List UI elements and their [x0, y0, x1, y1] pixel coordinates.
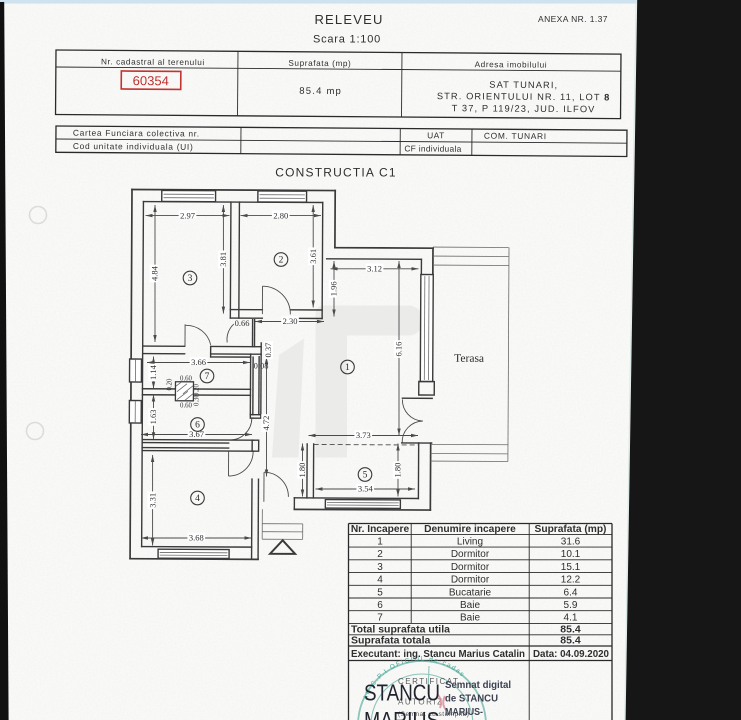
- svg-text:T 37, P 119/23, JUD. ILFO: T 37, P 119/23, JUD. ILFOV: [452, 103, 596, 114]
- svg-text:UAT: UAT: [427, 130, 445, 140]
- svg-text:3.66: 3.66: [191, 357, 206, 367]
- svg-text:Dormitor: Dormitor: [451, 575, 490, 586]
- svg-text:Adresa imobilului: Adresa imobilului: [475, 60, 548, 70]
- svg-text:1.63: 1.63: [148, 409, 158, 424]
- svg-text:Baie: Baie: [460, 613, 480, 624]
- svg-text:0.20: 0.20: [167, 378, 174, 390]
- svg-text:6: 6: [377, 600, 383, 611]
- svg-text:Suprafata (mp): Suprafata (mp): [288, 59, 351, 68]
- svg-text:COM. TUNARI: COM. TUNARI: [484, 131, 547, 141]
- svg-text:5.9: 5.9: [564, 600, 578, 611]
- svg-text:MARIUS-: MARIUS-: [364, 707, 446, 720]
- svg-text:1.80: 1.80: [393, 463, 403, 478]
- svg-text:3.68: 3.68: [189, 533, 204, 543]
- svg-text:Dormitor: Dormitor: [451, 549, 490, 560]
- svg-text:Nr. Incapere: Nr. Incapere: [351, 524, 410, 535]
- svg-text:1.96: 1.96: [329, 281, 339, 296]
- svg-text:3.31: 3.31: [147, 493, 157, 508]
- svg-text:6.16: 6.16: [394, 342, 404, 357]
- svg-text:Nr. cadastral al terenului: Nr. cadastral al terenului: [101, 57, 205, 67]
- svg-text:1.14: 1.14: [148, 364, 158, 380]
- svg-text:4: 4: [377, 575, 383, 586]
- svg-text:4: 4: [195, 494, 200, 504]
- svg-text:2.30: 2.30: [283, 316, 298, 326]
- svg-text:STR. ORIENTULUI NR. 11, LOT: STR. ORIENTULUI NR. 11, LOT 8: [437, 91, 611, 102]
- svg-text:0.37: 0.37: [263, 343, 273, 358]
- svg-text:de STANCU: de STANCU: [445, 693, 498, 705]
- svg-text:3: 3: [188, 274, 193, 284]
- svg-text:4.72: 4.72: [261, 416, 271, 431]
- svg-text:85.4: 85.4: [560, 623, 581, 635]
- svg-text:85.4 mp: 85.4 mp: [299, 86, 342, 97]
- svg-text:15.1: 15.1: [561, 562, 581, 573]
- svg-text:0.30: 0.30: [194, 393, 201, 405]
- svg-text:Scara 1:100: Scara 1:100: [313, 34, 381, 46]
- svg-text:6.4: 6.4: [564, 587, 578, 598]
- svg-text:85.4: 85.4: [560, 635, 581, 647]
- svg-text:Cod unitate individuala (UI: Cod unitate individuala (UI): [73, 141, 194, 152]
- svg-text:Dormitor: Dormitor: [451, 562, 490, 573]
- svg-text:7: 7: [205, 372, 210, 382]
- svg-text:3.12: 3.12: [367, 264, 382, 274]
- svg-text:10.1: 10.1: [561, 549, 581, 560]
- svg-text:60354: 60354: [133, 73, 169, 88]
- svg-text:RELEVEU: RELEVEU: [314, 12, 383, 27]
- svg-text:3.61: 3.61: [308, 249, 318, 264]
- svg-text:3: 3: [377, 562, 383, 573]
- svg-text:4.1: 4.1: [564, 613, 578, 624]
- svg-text:Total suprafata utila: Total suprafata utila: [351, 623, 450, 635]
- svg-text:7: 7: [377, 613, 383, 624]
- svg-text:0.08: 0.08: [254, 361, 269, 371]
- svg-text:31.6: 31.6: [561, 536, 581, 547]
- svg-text:Terasa: Terasa: [454, 353, 484, 365]
- svg-text:0.66: 0.66: [235, 318, 250, 328]
- svg-text:4.84: 4.84: [150, 265, 160, 281]
- svg-text:2: 2: [279, 256, 284, 266]
- svg-text:Suprafata (mp): Suprafata (mp): [535, 524, 607, 535]
- svg-text:1.80: 1.80: [297, 463, 307, 478]
- svg-text:12.2: 12.2: [561, 575, 581, 586]
- svg-text:2: 2: [377, 549, 383, 560]
- svg-text:5: 5: [377, 587, 383, 598]
- svg-text:3.81: 3.81: [218, 252, 228, 267]
- svg-text:MARIUS-: MARIUS-: [445, 706, 483, 718]
- svg-text:1: 1: [377, 536, 383, 547]
- svg-text:Data: 04.09.2020: Data: 04.09.2020: [533, 648, 609, 660]
- svg-text:3.54: 3.54: [358, 484, 374, 494]
- svg-text:Baie: Baie: [460, 600, 480, 611]
- svg-text:Bucatarie: Bucatarie: [449, 587, 492, 598]
- svg-text:2.80: 2.80: [273, 210, 288, 220]
- svg-text:Cartea Funciara colectiva n: Cartea Funciara colectiva nr.: [73, 128, 200, 139]
- svg-text:5: 5: [363, 471, 368, 481]
- svg-text:SAT TUNARI,: SAT TUNARI,: [489, 80, 558, 91]
- svg-text:STANCU: STANCU: [364, 680, 440, 706]
- svg-text:6: 6: [195, 421, 200, 431]
- svg-text:Denumire incapere: Denumire incapere: [424, 524, 516, 535]
- svg-text:1: 1: [345, 363, 350, 373]
- svg-text:3.73: 3.73: [356, 430, 371, 440]
- svg-text:Suprafata totala: Suprafata totala: [351, 635, 431, 647]
- svg-text:CF individuala: CF individuala: [404, 143, 461, 153]
- svg-text:Living: Living: [457, 536, 483, 547]
- svg-text:Semnat digital: Semnat digital: [445, 679, 511, 691]
- svg-text:0.60: 0.60: [180, 403, 192, 410]
- svg-text:CONSTRUCTIA C1: CONSTRUCTIA C1: [275, 166, 396, 180]
- svg-text:0.60: 0.60: [180, 376, 192, 383]
- svg-text:ANEXA NR. 1.37: ANEXA NR. 1.37: [538, 14, 608, 24]
- svg-text:2.97: 2.97: [180, 210, 195, 220]
